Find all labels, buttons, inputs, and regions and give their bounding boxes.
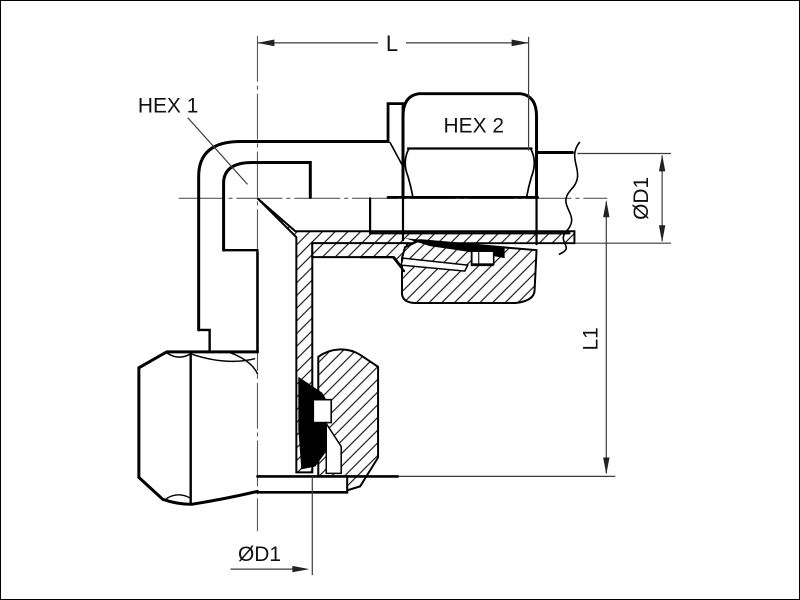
labels: HEX 1 HEX 2 L ØD1 L1 ØD1 bbox=[138, 31, 653, 566]
dim-label-D1-right: ØD1 bbox=[630, 177, 653, 220]
centerlines bbox=[179, 36, 608, 531]
ferrule-gap-vertical bbox=[313, 400, 331, 423]
label-hex2: HEX 2 bbox=[444, 115, 504, 138]
nut2-corner-lens-left bbox=[405, 149, 413, 198]
hex1-leader-line bbox=[188, 118, 248, 185]
nut2-corner-lens-right bbox=[527, 149, 535, 198]
flange-outline bbox=[388, 104, 403, 198]
dimension-lines bbox=[188, 37, 671, 575]
label-hex1: HEX 1 bbox=[138, 95, 198, 118]
ferrule-gap-horizontal bbox=[472, 251, 494, 264]
dim-label-L: L bbox=[386, 31, 398, 56]
technical-drawing: HEX 1 HEX 2 L ØD1 L1 ØD1 bbox=[1, 1, 799, 599]
dim-label-D1-bottom: ØD1 bbox=[238, 543, 281, 566]
drawing-canvas: HEX 1 HEX 2 L ØD1 L1 ØD1 bbox=[0, 0, 800, 600]
dim-label-L1: L1 bbox=[579, 327, 602, 350]
